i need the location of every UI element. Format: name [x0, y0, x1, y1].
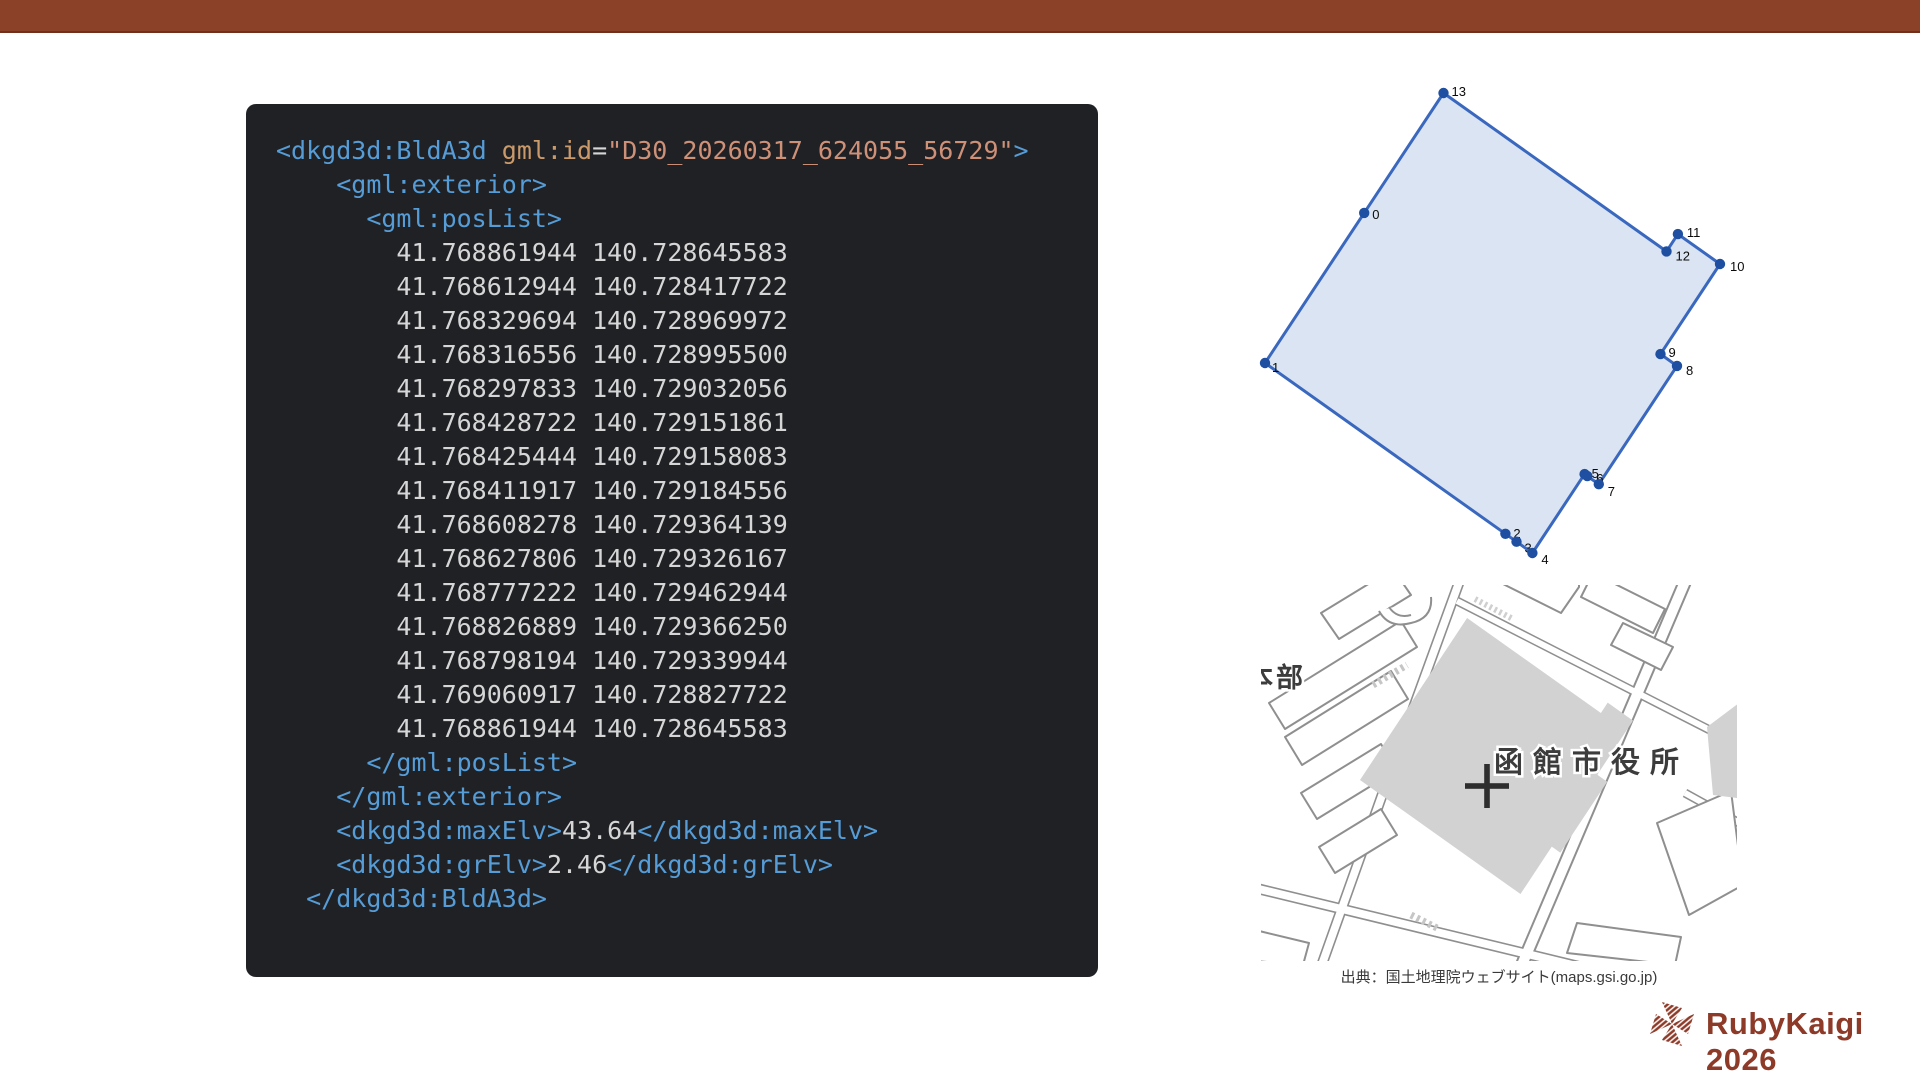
vertex-label: 11 [1687, 225, 1701, 240]
code-line: <gml:exterior> [276, 168, 1098, 202]
vertex-dot [1438, 88, 1448, 98]
vertex-dot [1359, 208, 1369, 218]
code-line: 41.768861944 140.728645583 [276, 712, 1098, 746]
code-line: 41.768297833 140.729032056 [276, 372, 1098, 406]
vertex-dot [1582, 471, 1592, 481]
code-line: 41.768798194 140.729339944 [276, 644, 1098, 678]
vertex-dot [1260, 358, 1270, 368]
vertex-dot [1661, 246, 1671, 256]
vertex-dot [1655, 349, 1665, 359]
map-source-caption: 出典：国土地理院ウェブサイト(maps.gsi.go.jp) [1261, 966, 1737, 987]
vertex-dot [1715, 259, 1725, 269]
rubykaigi-logo-icon [1648, 1000, 1696, 1048]
code-line: </dkgd3d:BldA3d> [276, 882, 1098, 916]
polygon-outline [1265, 93, 1720, 553]
code-line: 41.768612944 140.728417722 [276, 270, 1098, 304]
code-line: 41.768861944 140.728645583 [276, 236, 1098, 270]
vertex-label: 0 [1372, 207, 1379, 222]
code-line: 41.768411917 140.729184556 [276, 474, 1098, 508]
code-line: 41.768826889 140.729366250 [276, 610, 1098, 644]
building-polygon-chart: 012345678910111213 [1255, 78, 1760, 575]
code-line: 41.768777222 140.729462944 [276, 576, 1098, 610]
slide-top-accent-bar [0, 0, 1920, 33]
vertex-label: 1 [1272, 360, 1279, 375]
vertex-label: 4 [1541, 552, 1548, 567]
code-line: <dkgd3d:BldA3d gml:id="D30_20260317_6240… [276, 134, 1098, 168]
vertex-dot [1511, 537, 1521, 547]
rubykaigi-logo-text: RubyKaigi 2026 [1706, 1006, 1920, 1078]
vertex-dot [1672, 361, 1682, 371]
vertex-dot [1500, 529, 1510, 539]
vertex-label: 13 [1452, 84, 1466, 99]
code-line: 41.768608278 140.729364139 [276, 508, 1098, 542]
code-line: 41.768425444 140.729158083 [276, 440, 1098, 474]
vertex-label: 10 [1730, 259, 1744, 274]
vertex-label: 12 [1676, 248, 1690, 263]
code-line: 41.768316556 140.728995500 [276, 338, 1098, 372]
code-line: <dkgd3d:grElv>2.46</dkgd3d:grElv> [276, 848, 1098, 882]
gsi-map: 函館市役所 本部 [1261, 585, 1737, 961]
code-line: 41.768428722 140.729151861 [276, 406, 1098, 440]
code-line: </gml:exterior> [276, 780, 1098, 814]
vertex-dot [1673, 229, 1683, 239]
vertex-dot [1527, 548, 1537, 558]
code-line: <gml:posList> [276, 202, 1098, 236]
map-building-label: 函館市役所 [1494, 745, 1689, 779]
vertex-label: 9 [1669, 345, 1676, 360]
vertex-label: 8 [1686, 363, 1693, 378]
map-left-edge-label: 本部 [1261, 662, 1306, 693]
map-secondary-building [1707, 703, 1737, 799]
code-line: 41.768627806 140.729326167 [276, 542, 1098, 576]
vertex-dot [1594, 479, 1604, 489]
vertex-label: 7 [1608, 484, 1615, 499]
slide: <dkgd3d:BldA3d gml:id="D30_20260317_6240… [0, 0, 1920, 1080]
code-content: <dkgd3d:BldA3d gml:id="D30_20260317_6240… [276, 134, 1098, 916]
code-line: <dkgd3d:maxElv>43.64</dkgd3d:maxElv> [276, 814, 1098, 848]
code-line: 41.768329694 140.728969972 [276, 304, 1098, 338]
code-line: </gml:posList> [276, 746, 1098, 780]
code-line: 41.769060917 140.728827722 [276, 678, 1098, 712]
gml-code-panel: <dkgd3d:BldA3d gml:id="D30_20260317_6240… [246, 104, 1098, 977]
